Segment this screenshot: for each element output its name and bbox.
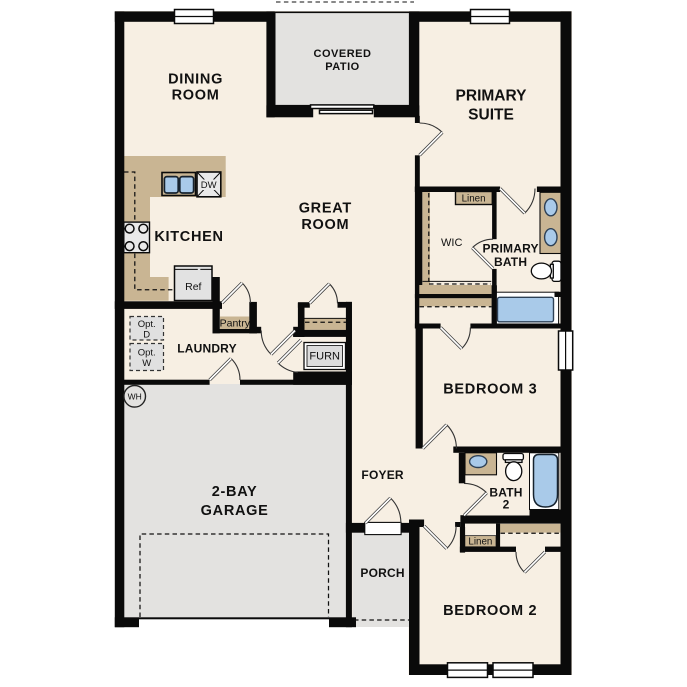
svg-text:ROOM: ROOM: [301, 217, 349, 233]
svg-text:Linen: Linen: [468, 537, 492, 548]
svg-text:PATIO: PATIO: [325, 61, 359, 73]
svg-text:LAUNDRY: LAUNDRY: [177, 341, 237, 355]
svg-text:WIC: WIC: [441, 237, 462, 249]
svg-text:GREAT: GREAT: [299, 201, 352, 217]
svg-text:2-BAY: 2-BAY: [212, 484, 258, 500]
svg-text:BEDROOM 3: BEDROOM 3: [443, 381, 537, 397]
svg-text:PORCH: PORCH: [360, 566, 404, 580]
svg-text:PRIMARY: PRIMARY: [456, 88, 528, 105]
svg-text:COVERED: COVERED: [314, 48, 372, 60]
svg-text:2: 2: [503, 498, 510, 512]
svg-text:Ref: Ref: [185, 281, 201, 293]
svg-text:D: D: [143, 330, 150, 341]
svg-text:BATH: BATH: [494, 255, 527, 269]
svg-text:ROOM: ROOM: [172, 88, 220, 104]
svg-text:W: W: [142, 358, 151, 369]
svg-text:BEDROOM 2: BEDROOM 2: [443, 603, 537, 619]
svg-text:GARAGE: GARAGE: [201, 503, 269, 519]
svg-text:Linen: Linen: [462, 193, 486, 204]
svg-text:DW: DW: [201, 180, 217, 191]
svg-text:WH: WH: [128, 392, 142, 402]
svg-text:FOYER: FOYER: [361, 468, 403, 482]
svg-text:FURN: FURN: [309, 351, 340, 363]
svg-text:PRIMARY: PRIMARY: [482, 241, 538, 255]
svg-text:Pantry: Pantry: [220, 318, 251, 330]
svg-text:DINING: DINING: [168, 72, 223, 88]
svg-text:SUITE: SUITE: [468, 107, 514, 124]
svg-text:Opt.: Opt.: [138, 348, 156, 359]
svg-text:KITCHEN: KITCHEN: [154, 229, 223, 245]
svg-text:Opt.: Opt.: [138, 319, 156, 330]
